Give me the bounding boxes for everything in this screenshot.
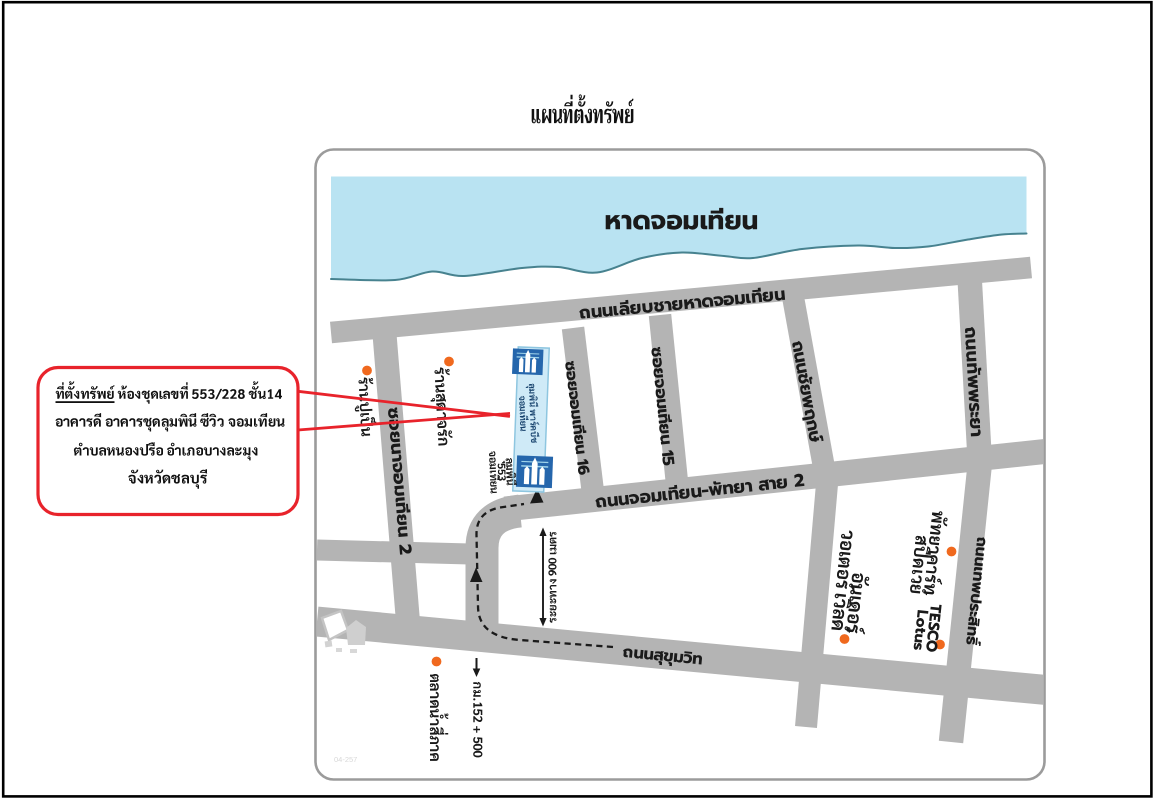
svg-text:04-257: 04-257	[334, 755, 357, 764]
